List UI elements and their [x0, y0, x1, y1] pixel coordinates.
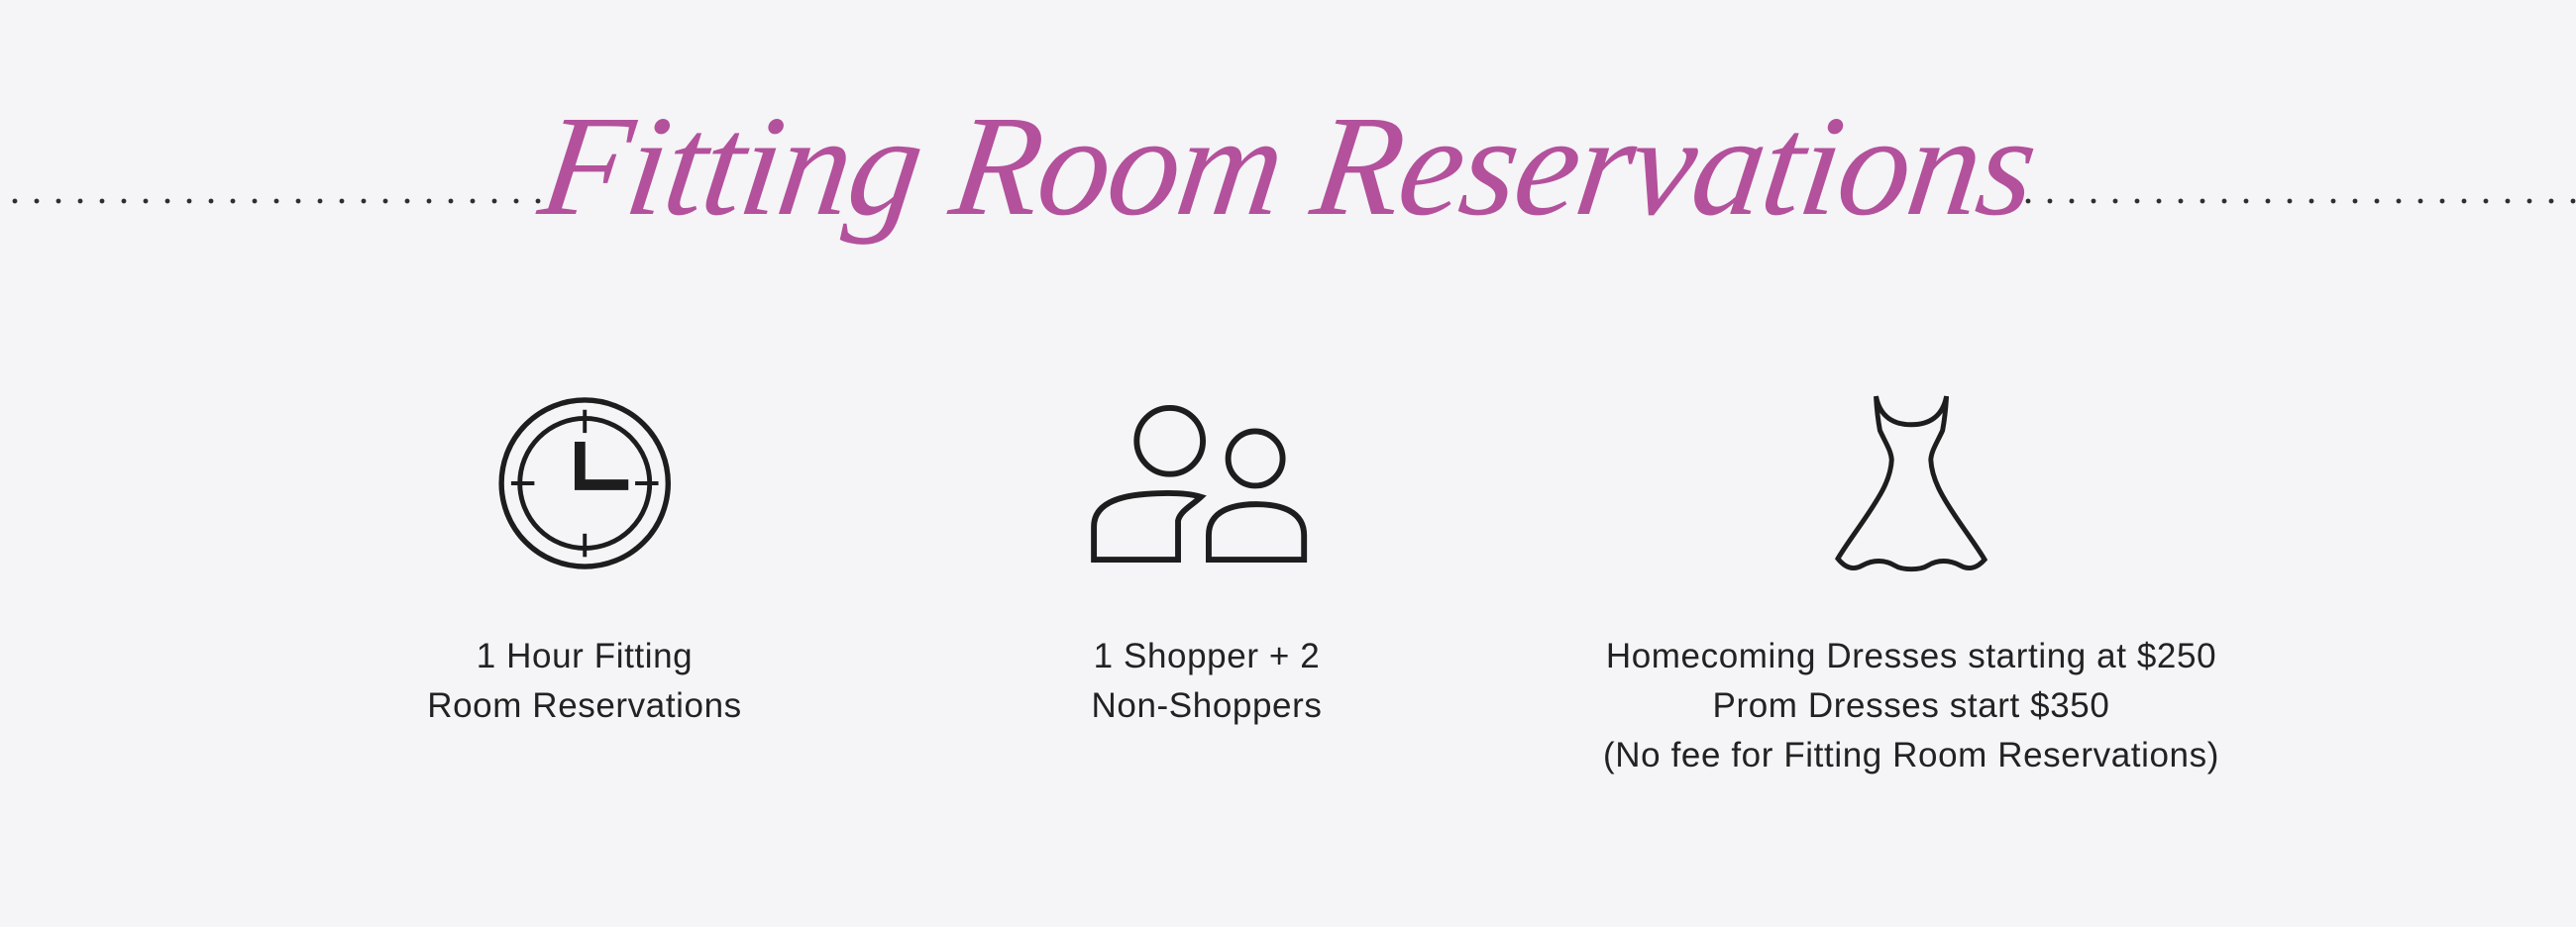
dotted-divider-left	[0, 197, 569, 205]
feature-line: Prom Dresses start $350	[1603, 681, 2219, 731]
people-icon-slot	[1090, 391, 1324, 575]
clock-icon-slot	[427, 391, 742, 575]
feature-caption: Homecoming Dresses starting at $250 Prom…	[1603, 632, 2219, 780]
feature-shopper-limit: 1 Shopper + 2 Non-Shoppers	[1090, 391, 1324, 731]
dress-icon-slot	[1603, 391, 2219, 575]
clock-icon	[497, 396, 672, 570]
dotted-divider-right	[2013, 197, 2576, 205]
feature-line: 1 Hour Fitting	[427, 632, 742, 681]
feature-fitting-time: 1 Hour Fitting Room Reservations	[427, 391, 742, 731]
feature-caption: 1 Shopper + 2 Non-Shoppers	[1090, 632, 1324, 731]
feature-line: (No fee for Fitting Room Reservations)	[1603, 731, 2219, 780]
dress-icon	[1833, 393, 1989, 574]
feature-line: 1 Shopper + 2	[1090, 632, 1324, 681]
page-title: Fitting Room Reservations	[530, 77, 2046, 257]
feature-line: Homecoming Dresses starting at $250	[1603, 632, 2219, 681]
feature-pricing: Homecoming Dresses starting at $250 Prom…	[1603, 391, 2219, 780]
people-icon	[1090, 403, 1324, 565]
feature-line: Room Reservations	[427, 681, 742, 731]
feature-caption: 1 Hour Fitting Room Reservations	[427, 632, 742, 731]
fitting-room-banner: Fitting Room Reservations 1 Hour Fitting…	[0, 0, 2576, 927]
feature-line: Non-Shoppers	[1090, 681, 1324, 731]
